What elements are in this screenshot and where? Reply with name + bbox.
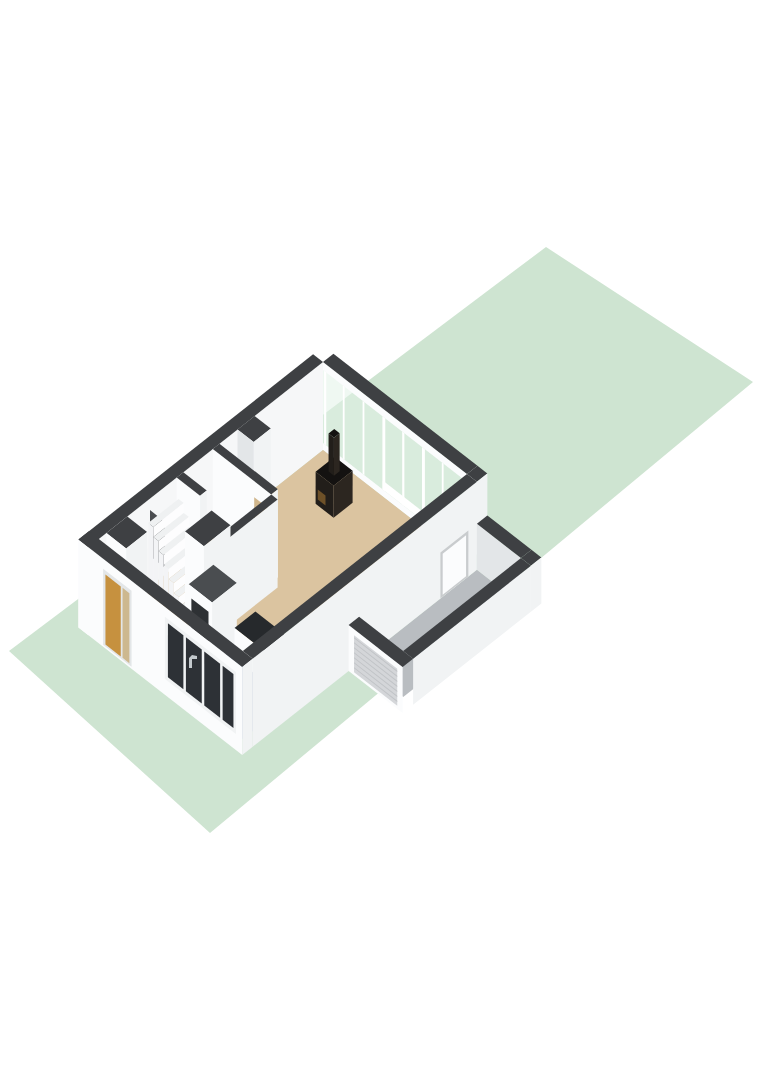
stove-pipe-side xyxy=(334,433,340,476)
garage-ne-corner-face xyxy=(531,557,541,611)
front-wall-end-face xyxy=(242,659,252,755)
stove-pipe-front xyxy=(329,433,334,475)
glass-wall-mullions-3 xyxy=(382,416,385,491)
front-door-sidelight xyxy=(123,588,130,663)
glass-wall-mullions-1 xyxy=(343,385,345,459)
kitchen-window-panes-3 xyxy=(223,666,234,728)
glass-wall-mullions-4 xyxy=(402,432,404,507)
glass-wall-mullions-2 xyxy=(363,401,365,475)
floorplan-canvas xyxy=(0,0,764,1080)
floorplan-3d-render xyxy=(0,0,764,1080)
glass-wall-mullions-0 xyxy=(324,371,326,446)
front-door-leaf xyxy=(105,575,120,657)
